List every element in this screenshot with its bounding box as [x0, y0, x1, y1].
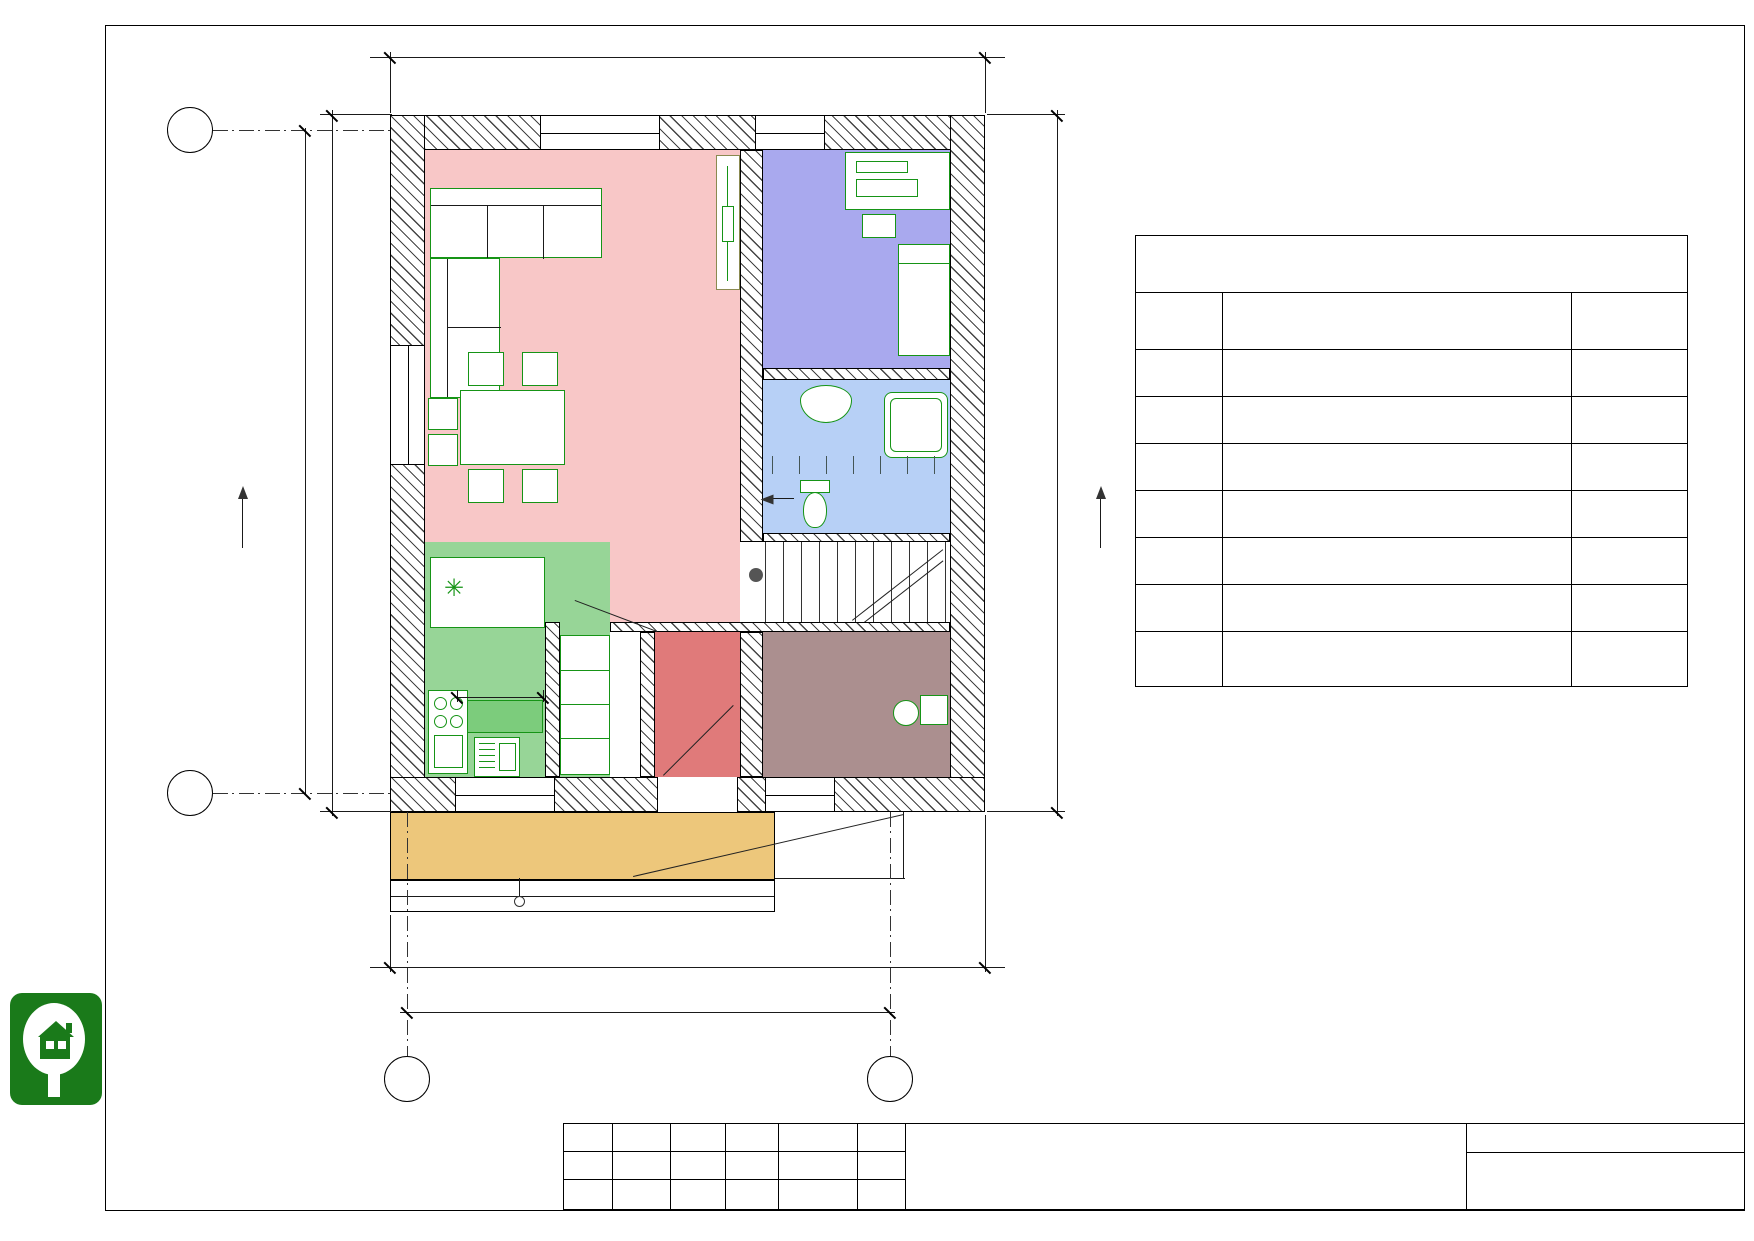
desk-chair — [862, 214, 896, 238]
explication-header-row — [1136, 293, 1687, 350]
wall-hall-horizontal — [610, 622, 950, 632]
sofa-top — [430, 188, 602, 258]
cell-area — [1572, 444, 1687, 490]
cell-num — [1136, 585, 1223, 631]
sink-symbol-icon: ✳ — [444, 574, 464, 603]
axis-circle-1 — [384, 1056, 430, 1102]
title-block-grid — [564, 1124, 906, 1209]
wall-inner-vertical-lower — [740, 632, 763, 777]
sheet-number — [1467, 1153, 1744, 1209]
tb-cell — [779, 1124, 858, 1152]
washing-machine — [474, 737, 520, 777]
tb-col-koluch — [613, 1180, 671, 1209]
dining-table — [460, 390, 565, 465]
table-row — [1136, 397, 1687, 444]
tb-cell — [613, 1152, 671, 1180]
table-row — [1136, 444, 1687, 491]
boiler-unit — [893, 700, 919, 726]
cell-name — [1223, 632, 1572, 686]
dim-line-bottom-inner — [400, 1012, 895, 1013]
dim-line-left-outer — [305, 128, 306, 795]
explication-table — [1135, 235, 1688, 687]
room-living-hall — [610, 542, 740, 622]
floor-heating-marks — [772, 456, 944, 474]
terrace-side-line — [775, 878, 905, 879]
window-ok1 — [455, 777, 555, 812]
logo-icon — [10, 993, 102, 1105]
tb-cell — [858, 1152, 906, 1180]
col-header-area — [1572, 293, 1687, 349]
entrance-mark-line — [519, 878, 520, 898]
title-block — [563, 1123, 1745, 1210]
tb-cell — [671, 1152, 726, 1180]
dim-line-left-inner — [332, 110, 333, 816]
entrance-mark-circle — [514, 896, 525, 907]
table-row — [1136, 585, 1687, 632]
witness-line — [390, 52, 391, 113]
vent-shaft — [716, 155, 740, 290]
table-row — [1136, 350, 1687, 397]
wall-top — [390, 115, 985, 150]
window-ok4 — [755, 115, 825, 150]
bathtub — [884, 392, 948, 458]
tb-cell — [726, 1152, 779, 1180]
wall-right — [950, 115, 985, 812]
witness-line — [390, 915, 391, 972]
terrace-side-line — [903, 812, 904, 878]
axis-circle-2 — [867, 1056, 913, 1102]
cell-name — [1223, 491, 1572, 537]
cell-area — [1572, 585, 1687, 631]
chair — [468, 352, 504, 386]
cell-num — [1136, 491, 1223, 537]
desk — [845, 152, 950, 210]
wall-bathroom-stairs — [763, 533, 950, 542]
door-arrow-head — [761, 495, 774, 505]
table-row — [1136, 491, 1687, 538]
dim-line-right — [1057, 110, 1058, 816]
table-total-row — [1136, 632, 1687, 686]
axis-circle-a — [167, 770, 213, 816]
sheet-cell — [1467, 1124, 1744, 1209]
chair — [428, 434, 458, 466]
section-arrow-icon — [1096, 486, 1106, 499]
window-ok2 — [765, 777, 835, 812]
toilet-bowl — [803, 492, 827, 528]
tb-cell — [726, 1124, 779, 1152]
tb-col-data — [858, 1180, 906, 1209]
total-area — [1572, 632, 1687, 686]
cell-area — [1572, 397, 1687, 443]
cell-area — [1572, 350, 1687, 396]
cell-num — [1136, 444, 1223, 490]
terrace-steps — [390, 880, 775, 912]
cell-num — [1136, 397, 1223, 443]
section-mark-line — [1100, 492, 1101, 548]
cell-name — [1223, 397, 1572, 443]
cell-name — [1223, 444, 1572, 490]
wall-inner-vertical-upper — [740, 150, 763, 542]
col-header-name — [1223, 293, 1572, 349]
cell-name — [1223, 350, 1572, 396]
axis-line-1 — [407, 812, 408, 1056]
wall-cabinet-bathroom — [763, 368, 950, 380]
cell-area — [1572, 538, 1687, 584]
tb-cell — [564, 1124, 613, 1152]
entrance-door-opening — [657, 777, 738, 812]
room-tambour — [655, 632, 740, 777]
dim-line-island — [457, 697, 543, 698]
stair-treads — [765, 542, 950, 622]
table-row — [1136, 538, 1687, 585]
tb-cell — [564, 1152, 613, 1180]
window-ok3 — [540, 115, 660, 150]
explication-title — [1136, 236, 1687, 293]
tb-col-izm — [564, 1180, 613, 1209]
cell-num — [1136, 538, 1223, 584]
stair-start-dot — [749, 568, 763, 582]
cell-num — [1136, 350, 1223, 396]
tb-cell — [779, 1152, 858, 1180]
axis-circle-b — [167, 107, 213, 153]
chair — [468, 469, 504, 503]
chair — [428, 398, 458, 430]
axis-line-2 — [890, 812, 891, 1056]
chair — [522, 469, 558, 503]
tb-col-podp — [779, 1180, 858, 1209]
doc-title — [906, 1124, 1467, 1209]
kitchen-island — [457, 700, 543, 733]
col-header-num — [1136, 293, 1223, 349]
bed — [898, 244, 950, 356]
dim-line-top — [370, 57, 1005, 58]
chair — [522, 352, 558, 386]
tb-col-list — [671, 1180, 726, 1209]
section-mark-line — [242, 492, 243, 548]
witness-line — [985, 815, 986, 972]
tb-cell — [671, 1124, 726, 1152]
wall-kitchen-partition — [545, 622, 560, 777]
tb-cell — [858, 1124, 906, 1152]
cell-name — [1223, 538, 1572, 584]
terrace — [390, 812, 775, 880]
witness-line — [985, 52, 986, 113]
cell-name — [1223, 585, 1572, 631]
dim-line-bottom-outer — [370, 967, 1005, 968]
sheet-label — [1467, 1124, 1744, 1153]
section-arrow-icon — [238, 486, 248, 499]
window-ok5 — [390, 345, 425, 465]
drawing-sheet: ✳ — [0, 0, 1754, 1241]
boiler-tank — [920, 695, 948, 725]
room-hallway — [610, 632, 640, 777]
wall-tambour-left — [640, 632, 655, 777]
tb-col-dok — [726, 1180, 779, 1209]
cell-area — [1572, 491, 1687, 537]
cell-num — [1136, 632, 1223, 686]
tb-cell — [613, 1124, 671, 1152]
tall-cabinet — [560, 635, 610, 775]
